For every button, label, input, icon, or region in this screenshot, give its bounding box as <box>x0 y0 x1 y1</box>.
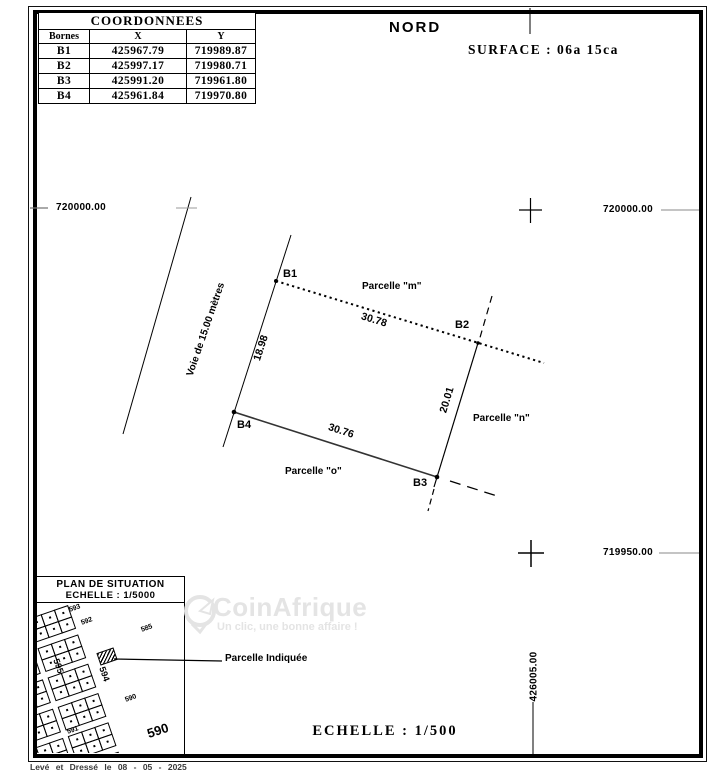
borne-y: 719989.87 <box>187 44 256 59</box>
inset-parcel-cell <box>37 691 51 708</box>
borne-x: 425997.17 <box>90 59 187 74</box>
borne-x: 425961.84 <box>90 89 187 104</box>
inset-parcel-cell <box>37 662 41 679</box>
borne-x: 425967.79 <box>90 44 187 59</box>
borne-id: B1 <box>39 44 90 59</box>
scale-label: ECHELLE : 1/500 <box>295 723 475 740</box>
borne-y: 719970.80 <box>187 89 256 104</box>
indicated-parcel-label: Parcelle Indiquée <box>225 653 307 664</box>
north-label: NORD <box>389 19 441 36</box>
inset-parcel-cell <box>43 720 61 737</box>
parcel-label-m: Parcelle "m" <box>362 281 422 292</box>
footer-note: Levé et Dressé le 08 - 05 - 2025 <box>30 762 187 772</box>
grid-label-719950-right: 719950.00 <box>603 547 653 558</box>
coordinates-table-title: COORDONNEES <box>39 13 256 30</box>
inset-parcel-cell <box>104 752 122 753</box>
column-header-x: X <box>90 30 187 44</box>
surface-label: SURFACE : 06a 15ca <box>468 42 619 58</box>
column-header-bornes: Bornes <box>39 30 90 44</box>
watermark-brand: CoinAfrique <box>213 592 367 623</box>
table-row: B1 425967.79 719989.87 <box>39 44 256 59</box>
parcel-label-n: Parcelle "n" <box>473 413 530 424</box>
table-header-row: Bornes X Y <box>39 30 256 44</box>
point-label-b1: B1 <box>283 268 297 280</box>
borne-y: 719980.71 <box>187 59 256 74</box>
watermark-tagline: Un clic, une bonne affaire ! <box>217 621 358 633</box>
borne-id: B4 <box>39 89 90 104</box>
parcel-label-o: Parcelle "o" <box>285 466 342 477</box>
inset-parcel-cell <box>88 705 106 722</box>
borne-y: 719961.80 <box>187 74 256 89</box>
borne-id: B3 <box>39 74 90 89</box>
point-label-b3: B3 <box>413 477 427 489</box>
grid-label-426005-bottom: 426005.00 <box>529 649 540 705</box>
table-row: B3 425991.20 719961.80 <box>39 74 256 89</box>
inset-parcel-cell <box>68 646 86 663</box>
inset-title: PLAN DE SITUATION ECHELLE : 1/5000 <box>37 577 184 603</box>
point-label-b4: B4 <box>237 419 251 431</box>
coordinates-table: COORDONNEES Bornes X Y B1 425967.79 7199… <box>38 12 256 104</box>
inset-parcel-cell <box>78 675 96 692</box>
borne-id: B2 <box>39 59 90 74</box>
table-row: B4 425961.84 719970.80 <box>39 89 256 104</box>
inset-title-line2: ECHELLE : 1/5000 <box>37 591 184 602</box>
inset-parcel-cell <box>58 617 76 634</box>
inset-situation-plan: PLAN DE SITUATION ECHELLE : 1/5000 593 5… <box>36 576 185 755</box>
table-row: B2 425997.17 719980.71 <box>39 59 256 74</box>
grid-label-720000-left: 720000.00 <box>56 202 106 213</box>
grid-label-720000-right: 720000.00 <box>603 204 653 215</box>
cadastral-plan-page: COORDONNEES Bornes X Y B1 425967.79 7199… <box>0 0 720 776</box>
inset-parcel-cell <box>98 734 116 751</box>
point-label-b2: B2 <box>455 319 469 331</box>
column-header-y: Y <box>187 30 256 44</box>
borne-x: 425991.20 <box>90 74 187 89</box>
inset-title-line1: PLAN DE SITUATION <box>37 579 184 591</box>
